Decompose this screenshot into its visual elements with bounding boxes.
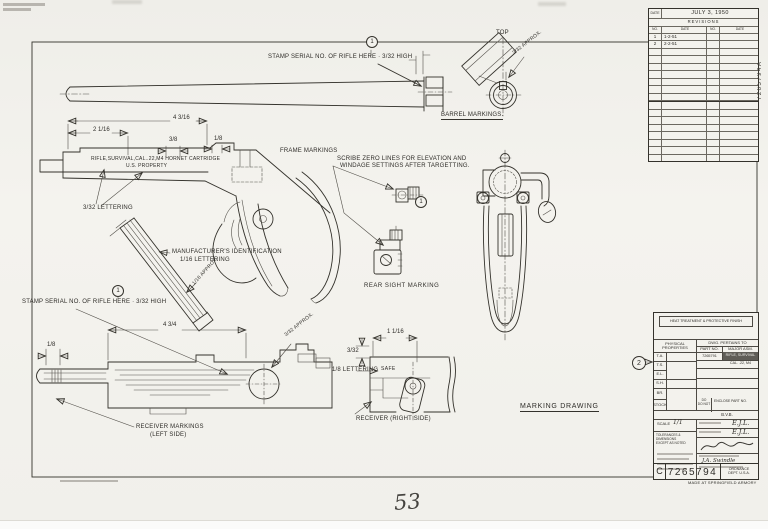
dim-receiver-width: 4 3/4 — [162, 322, 177, 328]
balloon-2: 2 — [632, 356, 646, 370]
drawing-title: MARKING DRAWING — [520, 403, 599, 412]
barrel-markings-label: BARREL MARKINGS. — [441, 112, 503, 120]
lettering-18-label: 1/8 LETTERING — [332, 367, 378, 373]
revision-row-empty — [649, 125, 758, 132]
illegible-text-line — [657, 453, 693, 455]
rev-no — [707, 34, 720, 40]
rev-no: 2 — [649, 41, 662, 47]
rev-no: 1 — [649, 34, 662, 40]
revision-col-headers: NO. DATE NO. DATE — [649, 27, 758, 34]
checked-signature: E.J.L. — [732, 429, 749, 436]
dim-frame-front: 2 1/16 — [92, 127, 111, 133]
receiver-left-label-line2: (LEFT SIDE) — [150, 432, 186, 438]
pertains-value-1: RIFLE, SURVIVAL — [723, 352, 758, 360]
drawing-number: 7265794 — [665, 464, 721, 480]
prop-rows: T.A. T.S. E.L. S.H. BR. STOCK — [654, 352, 696, 411]
stamp-serial-note-left: STAMP SERIAL NO. OF RIFLE HERE · 3/32 HI… — [22, 299, 166, 305]
revision-row-empty — [649, 101, 758, 109]
drawing-number-row: C 7265794 ORDNANCE DEPT. U.S.A. — [654, 463, 758, 480]
rear-sight-marking-label: REAR SIGHT MARKING — [364, 283, 439, 289]
balloon-1-left: 1 — [112, 285, 124, 297]
col-no-2: NO. — [707, 27, 720, 33]
scan-edge-strip — [0, 520, 768, 529]
revision-row-empty — [649, 117, 758, 124]
revision-table: DATE JULY 3, 1950 REVISIONS NO. DATE NO.… — [648, 8, 759, 162]
dim-frame-b: 1/8 — [213, 136, 223, 142]
receiver-left-label-line1: RECEIVER MARKINGS — [136, 424, 204, 430]
dim-safe-a: 1 1/16 — [386, 329, 405, 335]
rev-date — [720, 34, 758, 40]
approved-signature — [698, 439, 756, 453]
scribe-note-line2: WINDAGE SETTINGS AFTER TARGETTING. — [340, 163, 470, 169]
col-no-1: NO. — [649, 27, 662, 33]
bvb-cell: B.V.B. — [696, 411, 758, 419]
do-not-label: DO NOT — [697, 403, 711, 407]
scanned-drawing-sheet: STAMP SERIAL NO. OF RIFLE HERE · 3/32 HI… — [0, 0, 768, 529]
revision-row-empty — [649, 49, 758, 56]
handwritten-page-number: 53 — [393, 489, 421, 515]
scribe-note-line1: SCRIBE ZERO LINES FOR ELEVATION AND — [337, 156, 466, 162]
illegible-text-line — [699, 455, 739, 457]
title-block: HEAT TREATMENT & PROTECTIVE FINISH PHYSI… — [653, 312, 759, 480]
tol-line3: EXCEPT AS NOTED — [656, 441, 686, 445]
part-no-value: 7265791 — [697, 352, 723, 360]
revision-row-empty — [649, 155, 758, 161]
properties-table: PHYSICAL PROPERTIES DWG. PERTAINS TO PAR… — [654, 339, 758, 411]
illegible-corner-text — [3, 3, 45, 6]
revision-row-empty — [649, 147, 758, 154]
revision-row-empty — [649, 94, 758, 101]
dim-frame-a: 3/8 — [168, 137, 178, 143]
stamp-serial-note-top: STAMP SERIAL NO. OF RIFLE HERE · 3/32 HI… — [268, 54, 412, 60]
frame-lettering-label: 3/32 LETTERING — [83, 205, 133, 211]
revision-row-empty — [649, 64, 758, 71]
illegible-text-line — [699, 431, 721, 433]
balloon-1-rear-sight: 1 — [415, 196, 427, 208]
drawn-signature: E.J.L. — [732, 420, 749, 427]
rev-date: 2-2-51 — [662, 41, 707, 47]
balloon-1-top: 1 — [366, 36, 378, 48]
frame-stamp-text-line2: U.S. PROPERTY — [126, 164, 167, 169]
col-date-2: DATE — [720, 27, 758, 33]
revision-row-empty — [649, 56, 758, 63]
dim-receiver-a: 1/8 — [46, 342, 56, 348]
rev-no — [707, 41, 720, 47]
mfr-id-label-line2: 1/16 LETTERING — [180, 257, 230, 263]
revision-row-empty — [649, 132, 758, 139]
scale-label: SCALE — [657, 422, 670, 426]
top-view-label: TOP — [496, 30, 509, 36]
revision-row-empty — [649, 140, 758, 147]
frame-markings-label: FRAME MARKINGS — [280, 148, 337, 154]
dept-cell: ORDNANCE DEPT. U.S.A. — [720, 464, 758, 480]
safe-label: SAFE — [381, 367, 396, 372]
rev-date — [720, 41, 758, 47]
revision-date-label: DATE — [649, 9, 662, 18]
dept-line2: DEPT. U.S.A. — [728, 472, 750, 476]
revision-row-1: 1 1-2-51 — [649, 34, 758, 41]
revision-row-empty — [649, 110, 758, 117]
revision-date-row: DATE JULY 3, 1950 — [649, 9, 758, 19]
made-at-note: MADE AT SPRINGFIELD ARMORY — [688, 481, 757, 485]
frame-stamp-text-line1: RIFLE,SURVIVAL,CAL..22,M4 HORNET CARTRID… — [91, 157, 220, 162]
revision-row-empty — [649, 79, 758, 86]
col-date-1: DATE — [662, 27, 707, 33]
revision-row-empty — [649, 71, 758, 78]
receiver-right-label: RECEIVER (RIGHT SIDE) — [356, 416, 431, 422]
physical-line2: PROPERTIES — [662, 346, 688, 350]
illegible-text-line — [699, 422, 721, 424]
scale-value: 1/1 — [673, 420, 683, 427]
tolerances-note: TOLERANCES & DIMENSIONS EXCEPT AS NOTED — [656, 433, 686, 445]
revisions-header: REVISIONS — [649, 19, 758, 27]
illegible-footer-text — [60, 480, 118, 482]
scan-smudge — [538, 2, 566, 6]
rev-date: 1-2-51 — [662, 34, 707, 40]
dim-frame-width: 4 3/16 — [172, 115, 191, 121]
revision-row-2: 2 2-2-51 — [649, 41, 758, 48]
revision-row-empty — [649, 86, 758, 93]
margin-drawing-number: 7265794A — [757, 10, 763, 100]
heat-treatment-header: HEAT TREATMENT & PROTECTIVE FINISH — [659, 316, 753, 327]
scan-smudge — [112, 0, 142, 4]
mfr-id-label-line1: MANUFACTURER'S IDENTIFICATION — [172, 249, 282, 255]
illegible-corner-text — [3, 8, 31, 11]
dim-safe-b: 3/32 — [346, 348, 360, 354]
illegible-text-line — [657, 458, 689, 460]
revision-date-value: JULY 3, 1950 — [662, 9, 758, 18]
